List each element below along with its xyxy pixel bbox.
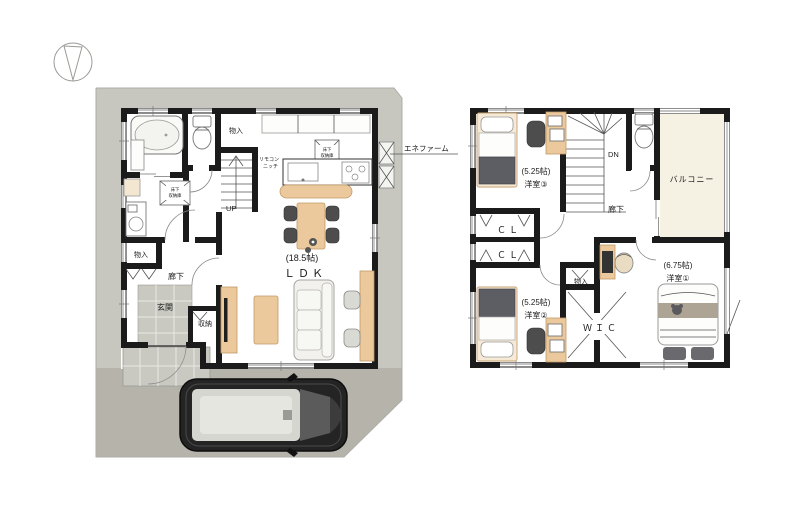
dining-chair <box>326 206 339 221</box>
svg-text:床下: 床下 <box>323 146 332 153</box>
room3-name-label: 洋室③ <box>524 179 547 189</box>
desk-chair-1f <box>344 329 360 347</box>
storage-left-label: 物入 <box>134 250 148 259</box>
bedroom3-chair <box>527 121 545 147</box>
toilet-1f <box>193 116 211 149</box>
bedroom3-bed <box>477 113 517 187</box>
svg-text:ニッチ: ニッチ <box>263 164 278 170</box>
dn-label: DN <box>608 150 619 159</box>
underfloor-label-1: 床下 <box>171 186 180 193</box>
storage-top-label: 物入 <box>229 126 243 135</box>
hallway-2f-label: 廊下 <box>608 204 624 214</box>
bedroom1-chair <box>615 253 633 273</box>
ldk-size-label: (18.5帖) <box>286 252 319 263</box>
room1-size-label: (6.75帖) <box>664 260 693 270</box>
car <box>180 373 347 457</box>
closet2-label: ＣＬ <box>497 250 521 260</box>
enefarm-label: エネファーム <box>404 144 449 153</box>
svg-text:リモコン: リモコン <box>259 157 279 163</box>
dining-chair <box>284 206 297 221</box>
ldk-label: ＬＤＫ <box>284 268 326 280</box>
kitchen-cabinets <box>262 115 370 133</box>
svg-text:収納庫: 収納庫 <box>321 152 335 159</box>
bath-counter <box>131 140 144 170</box>
closet1-label: ＣＬ <box>497 225 521 235</box>
dining-chair <box>326 228 339 243</box>
hallway-1f-label: 廊下 <box>168 271 184 281</box>
up-label: UP <box>226 204 236 213</box>
room1-name-label: 洋室① <box>666 273 689 283</box>
floor-plan-page: 床下 収納庫 物入 UP リモコン ニッチ 床下 <box>0 0 800 520</box>
dining-chair <box>284 228 297 243</box>
entrance-label: 玄関 <box>157 302 173 312</box>
balcony-label: バルコニー <box>670 175 715 184</box>
room2-size-label: (5.25帖) <box>522 297 551 307</box>
vanity <box>124 179 140 196</box>
underfloor-storage-washroom: 床下 収納庫 <box>160 181 190 205</box>
tv <box>224 298 228 342</box>
bedroom2-chair <box>527 328 545 354</box>
entrance-tiles <box>138 285 192 347</box>
wic-label: ＷＩＣ <box>583 323 619 333</box>
kitchen-sink <box>288 163 318 181</box>
desk-chair-1f <box>344 291 360 309</box>
room3-size-label: (5.25帖) <box>522 166 551 176</box>
coffee-table <box>254 296 278 344</box>
floor-plan-drawing: 床下 収納庫 物入 UP リモコン ニッチ 床下 <box>0 0 800 520</box>
storage-2f-label: 物入 <box>574 277 588 286</box>
house-2f: DN バルコニー 廊下 (5.25帖) <box>468 106 740 370</box>
underfloor-label-2: 収納庫 <box>169 192 183 199</box>
room2-name-label: 洋室② <box>524 310 547 320</box>
sofa <box>294 280 334 360</box>
compass-icon <box>54 43 92 81</box>
stove <box>342 162 369 183</box>
tv-board <box>221 287 237 353</box>
washing-machine <box>126 202 146 236</box>
bedroom2-bed <box>477 287 517 361</box>
breakfast-counter <box>280 185 352 198</box>
toilet-2f <box>635 114 653 148</box>
